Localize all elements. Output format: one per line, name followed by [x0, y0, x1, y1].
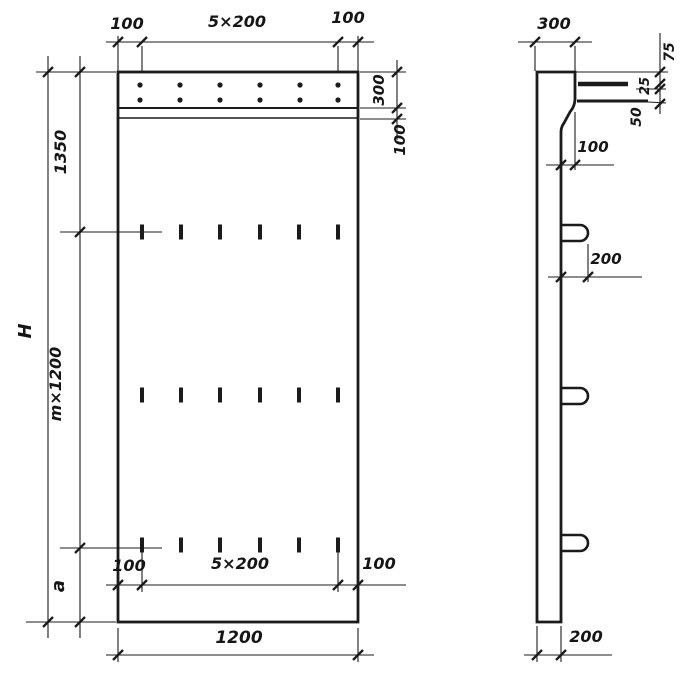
side-chain-middle-dim-label: 25	[638, 77, 653, 95]
front-strip-offset-dim-label: 100	[391, 124, 409, 155]
side-taper-dim-label: 100	[577, 138, 608, 156]
front-view: 100 5×200 100 300 100 H 1350 m×1200 a 10…	[15, 8, 409, 662]
lifting-loop	[561, 535, 588, 551]
front-module-height-dim-label: m×1200	[46, 347, 65, 422]
side-thickness-dim-label: 200	[569, 627, 602, 646]
front-width-dim-label: 1200	[215, 628, 262, 648]
side-loop-dim-label: 200	[590, 250, 621, 268]
front-upper-height-dim-label: 1350	[51, 130, 70, 175]
panel-outline-side	[537, 72, 575, 622]
front-overall-height-dim-label: H	[15, 323, 36, 338]
technical-drawing: 100 5×200 100 300 100 H 1350 m×1200 a 10…	[0, 0, 700, 700]
front-top-left-dim-label: 100	[110, 14, 143, 33]
front-bottom-pitch-dim-label: 5×200	[211, 554, 269, 573]
front-lower-height-dim-label: a	[48, 580, 69, 592]
side-chain-lower-dim-label: 50	[629, 107, 645, 127]
lifting-loop	[561, 225, 588, 241]
lifting-loop	[561, 388, 588, 404]
front-bottom-left-dim-label: 100	[112, 556, 145, 575]
front-top-right-dim-label: 100	[331, 8, 364, 27]
side-top-width-dim-label: 300	[537, 14, 570, 33]
panel-outline-front	[118, 72, 358, 622]
side-chain-upper-dim-label: 75	[662, 42, 678, 62]
side-view: 300 75 25 50 100 200 200	[518, 14, 678, 662]
drawing-sheet: 100 5×200 100 300 100 H 1350 m×1200 a 10…	[0, 0, 700, 700]
front-bottom-right-dim-label: 100	[362, 554, 395, 573]
front-top-pitch-dim-label: 5×200	[208, 12, 266, 31]
front-strip-height-dim-label: 300	[370, 74, 388, 105]
